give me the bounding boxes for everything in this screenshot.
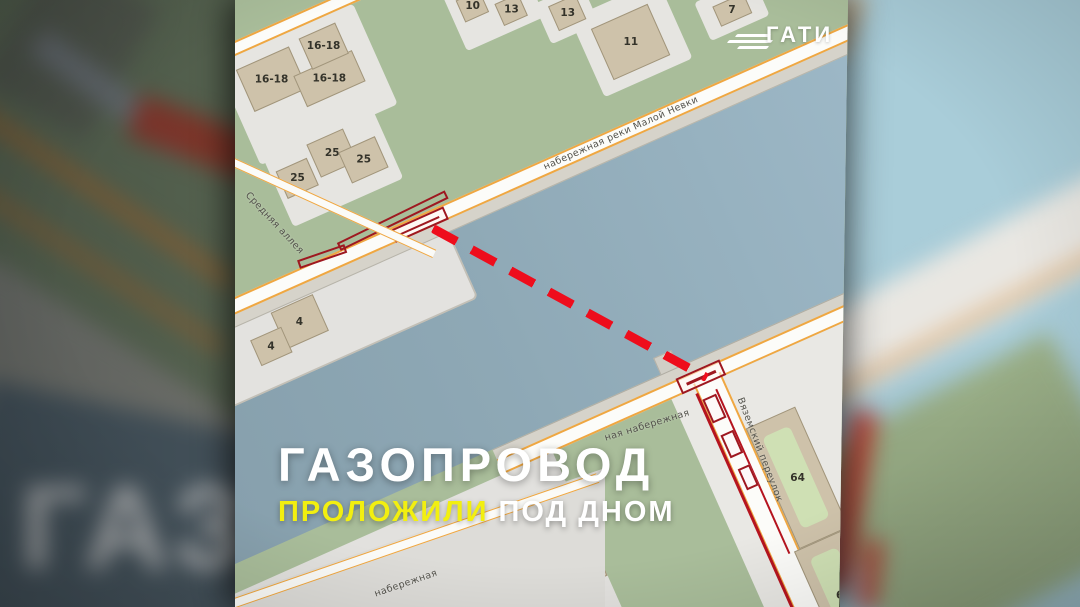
building-number: 10	[465, 0, 480, 12]
building-number: 4	[296, 316, 303, 328]
background-blur-left: ГАЗ	[0, 0, 240, 607]
background-blur-right-shapes	[840, 0, 1080, 607]
logo-text: ГАТИ	[766, 22, 833, 48]
blur-blob	[126, 94, 240, 181]
headline: ГАЗОПРОВОД ПРОЛОЖИЛИ ПОД ДНОМ	[278, 441, 675, 529]
building-number: 13	[560, 7, 575, 19]
building-number: 16-18	[307, 40, 341, 52]
background-blur-headline-text: ГАЗ	[20, 460, 240, 596]
building-number: 25	[290, 172, 305, 184]
building-number: 64	[836, 589, 848, 601]
building-number: 7	[729, 4, 736, 16]
map-panel-wrap: 16-18 16-18 16-18 25 25 25 4 4 10 13 13 …	[235, 0, 848, 607]
building-number: 16-18	[313, 73, 347, 85]
headline-line1: ГАЗОПРОВОД	[278, 441, 675, 489]
building-number: 4	[268, 340, 275, 352]
headline-line2-highlight: ПРОЛОЖИЛИ	[278, 496, 488, 528]
background-blur-left-shapes: ГАЗ	[0, 0, 240, 607]
social-card: ГАЗ	[0, 0, 1080, 607]
background-blur-right	[840, 0, 1080, 607]
gati-logo: ГАТИ	[728, 20, 848, 62]
building-number: 25	[325, 147, 340, 159]
logo-stripes-icon	[737, 46, 769, 49]
building-number: 11	[623, 36, 638, 48]
map-panel: 16-18 16-18 16-18 25 25 25 4 4 10 13 13 …	[235, 0, 848, 607]
building-number: 64	[790, 472, 805, 484]
courtyard	[809, 547, 848, 607]
building-number: 25	[356, 154, 371, 166]
headline-line2: ПРОЛОЖИЛИ ПОД ДНОМ	[278, 496, 675, 529]
building-number: 16-18	[255, 73, 289, 85]
headline-line2-rest: ПОД ДНОМ	[498, 496, 674, 528]
building-number: 13	[504, 4, 519, 16]
headline-line2-rest-text: ПОД ДНОМ	[498, 496, 674, 528]
